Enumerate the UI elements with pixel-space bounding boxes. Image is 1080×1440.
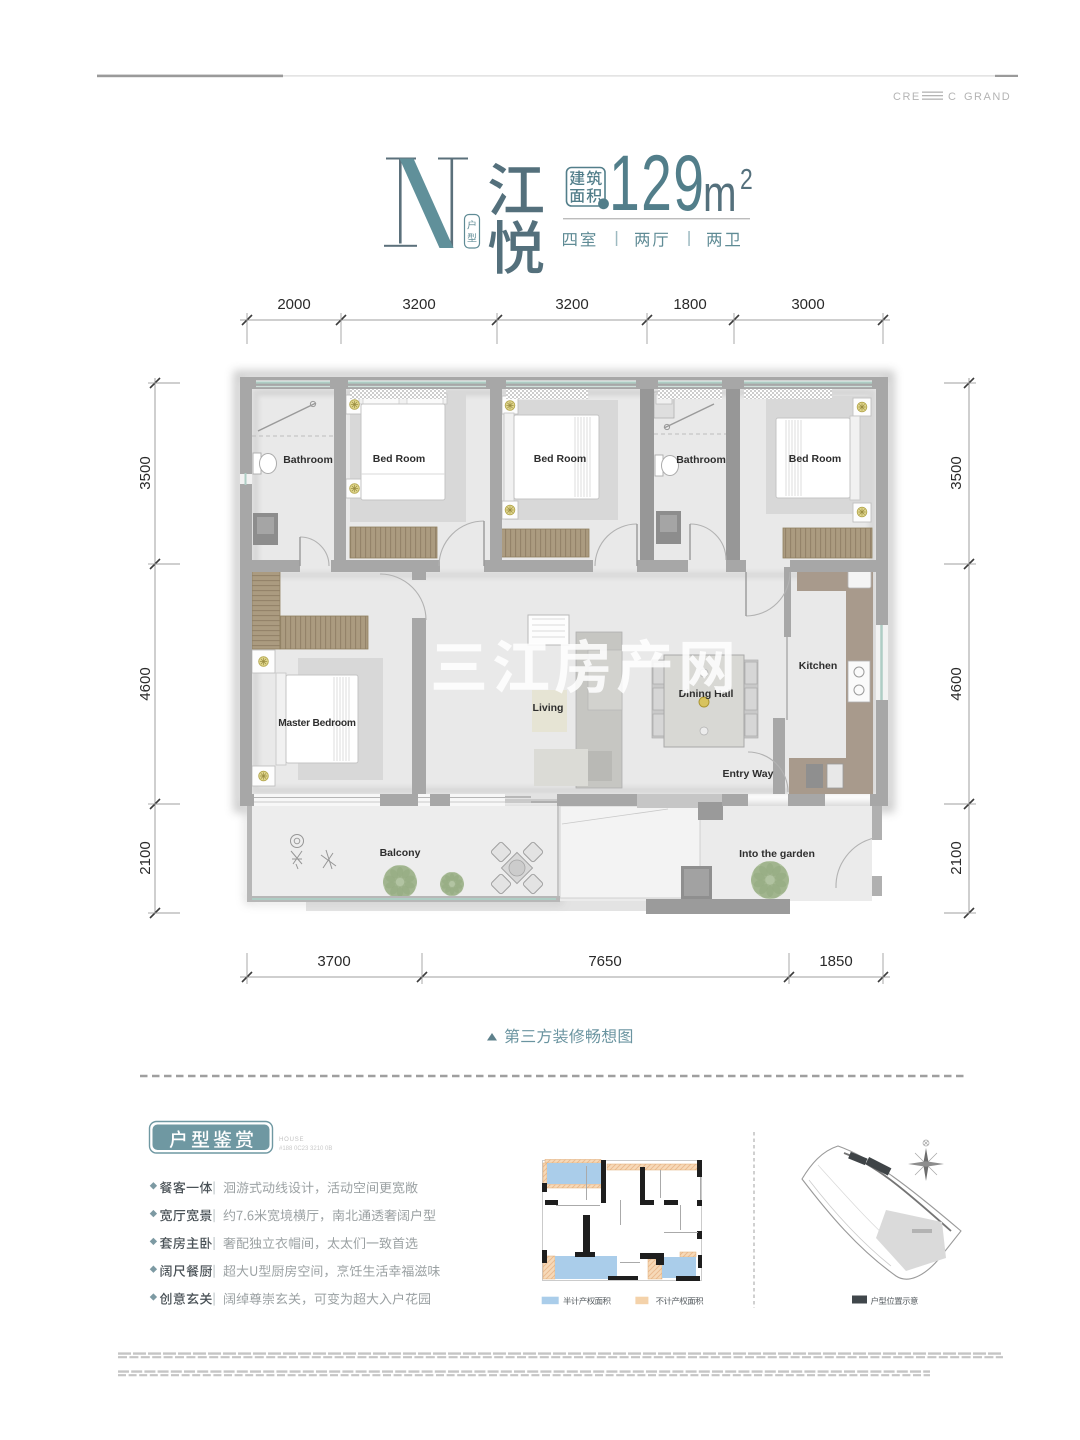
svg-text:1800: 1800 [673,296,706,313]
svg-text:Into the garden: Into the garden [739,848,815,860]
svg-text:GRAND: GRAND [964,91,1011,103]
svg-text:3000: 3000 [791,296,824,313]
svg-text:3200: 3200 [402,296,435,313]
svg-text:Living: Living [533,702,564,714]
svg-text:#188 0C23 3210 0B: #188 0C23 3210 0B [279,1146,332,1152]
svg-text:129: 129 [609,139,705,227]
svg-text:Bathroom: Bathroom [676,454,726,466]
svg-text:2000: 2000 [277,296,310,313]
svg-text:Bathroom: Bathroom [283,454,333,466]
svg-text:4600: 4600 [948,667,965,700]
svg-text:3500: 3500 [137,456,154,489]
svg-text:2: 2 [740,162,753,195]
svg-text:Bed Room: Bed Room [789,453,842,465]
svg-text:Kitchen: Kitchen [799,660,838,672]
svg-text:3500: 3500 [948,456,965,489]
svg-text:3200: 3200 [555,296,588,313]
svg-text:HOUSE: HOUSE [279,1137,304,1143]
svg-text:Bed Room: Bed Room [534,453,587,465]
svg-text:2100: 2100 [948,841,965,874]
svg-text:4600: 4600 [137,667,154,700]
svg-text:1850: 1850 [819,953,852,970]
svg-text:3700: 3700 [317,953,350,970]
svg-text:Entry Way: Entry Way [723,768,774,780]
svg-text:CRE: CRE [893,91,921,103]
svg-text:2100: 2100 [137,841,154,874]
svg-text:Master Bedroom: Master Bedroom [278,718,356,729]
svg-text:C: C [948,91,956,103]
svg-text:Balcony: Balcony [380,847,421,859]
svg-text:m: m [703,164,737,222]
svg-text:Bed Room: Bed Room [373,453,426,465]
svg-text:7650: 7650 [588,953,621,970]
